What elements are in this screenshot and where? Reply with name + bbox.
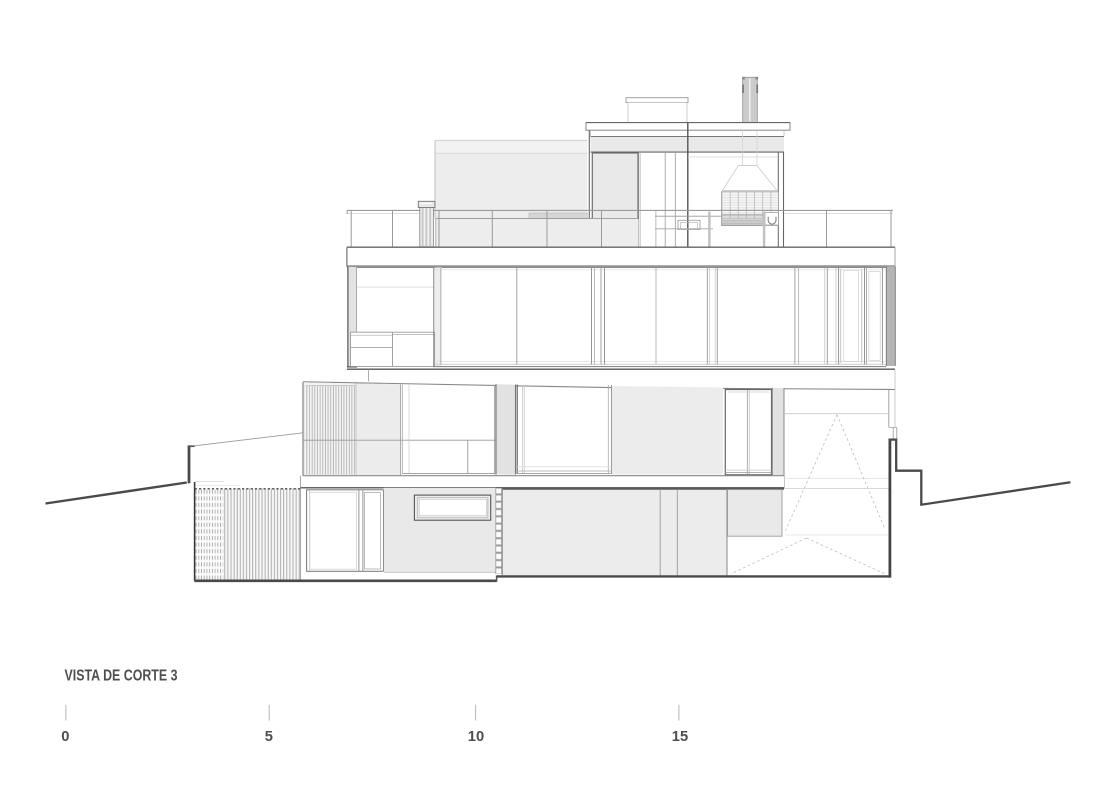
svg-text:5: 5 [265,729,273,745]
svg-text:15: 15 [672,729,688,745]
svg-text:10: 10 [468,729,484,745]
svg-text:0: 0 [61,729,69,745]
svg-text:VISTA DE CORTE 3: VISTA DE CORTE 3 [65,668,178,685]
